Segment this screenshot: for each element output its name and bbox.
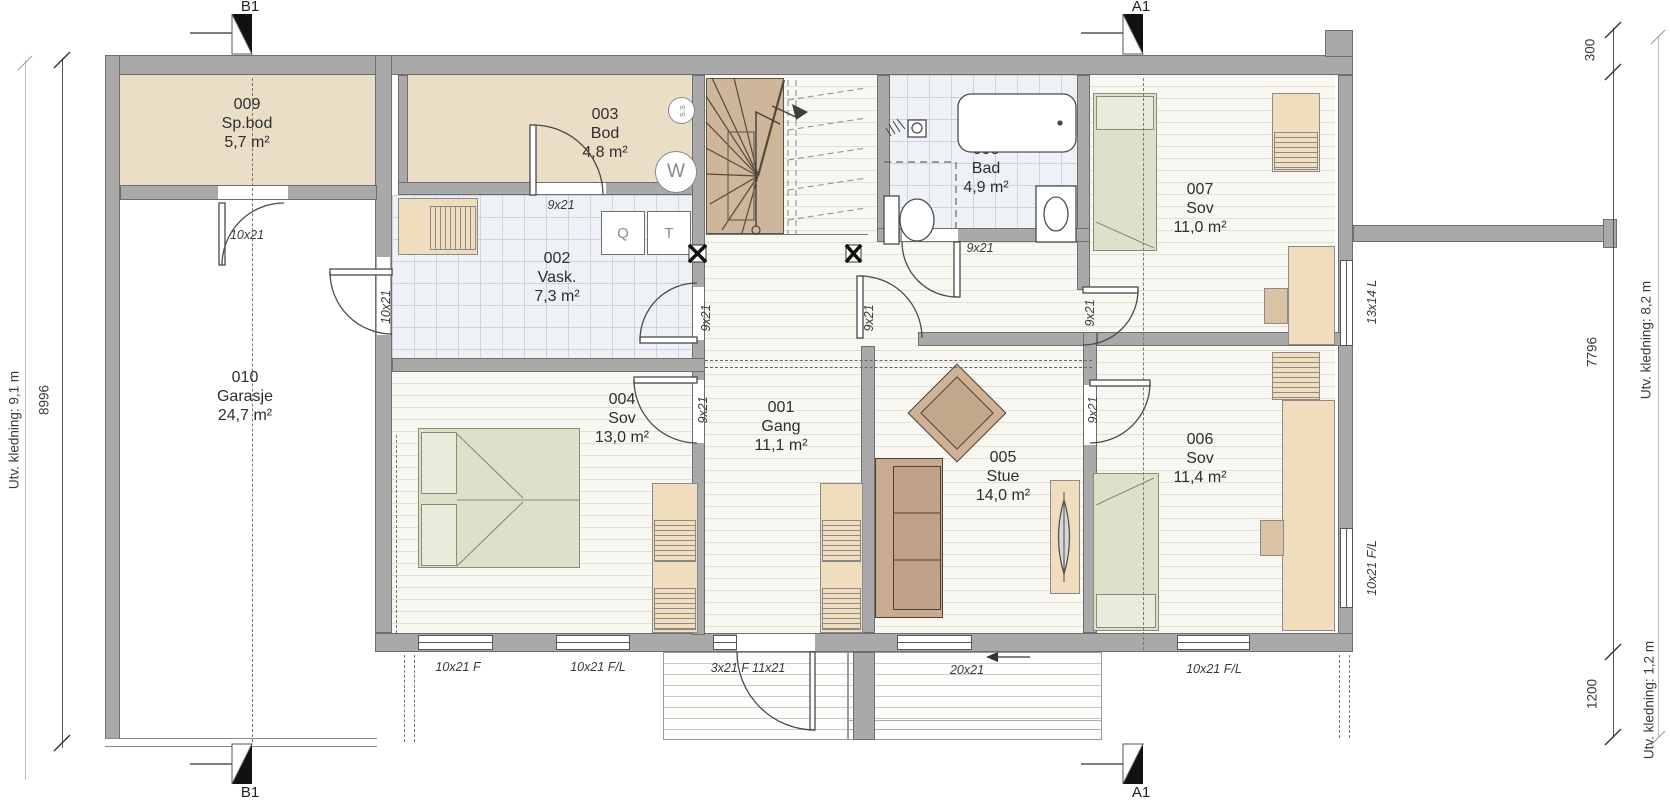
wall-stue-top <box>918 332 1086 346</box>
beam-line-1 <box>705 360 1092 361</box>
wardrobe-001-rail2 <box>822 588 861 630</box>
section-marker-b1-bottom <box>190 744 252 784</box>
floor-garage <box>120 200 375 740</box>
terrace-step-line <box>848 729 1102 730</box>
entry-sidelight <box>713 635 737 650</box>
overhang-dash-3 <box>1339 655 1340 738</box>
pillow-004b <box>421 504 457 566</box>
label-door-sov004: 9x21 <box>696 396 710 423</box>
sofa-005-cushions <box>893 466 941 610</box>
room-005-id: 005 <box>976 448 1030 467</box>
room-003-name: Bod <box>582 124 627 143</box>
room-002-name: Vask. <box>534 268 579 287</box>
room-label-002: 002 Vask. 7,3 m² <box>534 249 579 306</box>
room-label-006: 006 Sov 11,4 m² <box>1173 430 1226 487</box>
door-gap-bod <box>530 183 606 194</box>
room-001-area: 11,1 m² <box>754 436 807 455</box>
pillow-006 <box>1096 594 1156 628</box>
beam-line-2 <box>705 367 1092 368</box>
room-009-area: 5,7 m² <box>222 133 273 152</box>
stair-edge-line <box>706 234 868 235</box>
room-009-id: 009 <box>222 95 273 114</box>
room-006-name: Sov <box>1173 449 1226 468</box>
window-10x21-FL-2 <box>1177 635 1250 650</box>
room-label-003: 003 Bod 4,8 m² <box>582 105 627 162</box>
wardrobe-007-rail <box>1274 132 1318 170</box>
label-win-bottom-3: 10x21 F/L <box>1186 662 1242 676</box>
room-004-name: Sov <box>595 409 649 428</box>
dim-right-mm: 7796 <box>1585 337 1600 367</box>
overhang-dash-4 <box>1349 655 1350 738</box>
window-10x21-FL <box>556 635 630 650</box>
label-door-hall-vask: 9x21 <box>699 304 713 331</box>
floor-plan: s.s W Q T 8996 Utv. kledning: 9,1 m 300 … <box>0 0 1670 800</box>
desk-007 <box>1288 246 1335 345</box>
door-gap-spbod <box>218 186 288 199</box>
marker-a1-bottom-label: A1 <box>1132 784 1150 800</box>
room-007-area: 11,0 m² <box>1173 218 1226 237</box>
label-win-006-side: 10x21 F/L <box>1365 540 1379 596</box>
room-003-area: 4,8 m² <box>582 143 627 162</box>
wardrobe-006 <box>1272 352 1320 400</box>
label-door-bod: 9x21 <box>547 198 574 212</box>
room-label-009: 009 Sp.bod 5,7 m² <box>222 95 273 152</box>
room-002-id: 002 <box>534 249 579 268</box>
void-dash-garage-wall <box>396 435 397 633</box>
label-door-sov006: 9x21 <box>1086 396 1100 423</box>
wall-left <box>105 55 120 745</box>
label-win-007-side: 13x14 L <box>1365 280 1379 324</box>
bound-line-right <box>1658 36 1659 738</box>
dim-right-offset: 300 <box>1583 39 1598 62</box>
label-door-spbod: 10x21 <box>230 228 264 242</box>
sink-label: Q <box>617 225 629 242</box>
terrace-step-line <box>848 720 1102 721</box>
desk-006 <box>1282 400 1335 631</box>
tv-bench-005 <box>1050 480 1080 594</box>
room-001-id: 001 <box>754 398 807 417</box>
dim-right-cladding: Utv. kledning: 8,2 m <box>1639 281 1654 399</box>
central-vacuum-label: s.s <box>676 105 686 117</box>
wall-bath-left <box>877 75 890 230</box>
marker-b1-top-label: B1 <box>241 0 259 15</box>
chair-006 <box>1260 520 1284 556</box>
wall-vask-bottom <box>392 358 705 372</box>
room-004-area: 13,0 m² <box>595 428 649 447</box>
wall-bod-left <box>398 75 408 185</box>
label-door-bath: 9x21 <box>966 241 993 255</box>
window-10x21-FL-side <box>1340 528 1353 608</box>
garage-open-front <box>105 738 377 747</box>
room-008-area: 4,9 m² <box>963 178 1008 197</box>
chair-007 <box>1264 288 1288 324</box>
room-001-name: Gang <box>754 417 807 436</box>
washer-label: W <box>667 161 685 183</box>
wardrobe-004-rail <box>654 520 696 562</box>
room-006-id: 006 <box>1173 430 1226 449</box>
central-vacuum-icon: s.s <box>668 97 695 124</box>
room-005-area: 14,0 m² <box>976 486 1030 505</box>
marker-a1-top-label: A1 <box>1132 0 1150 15</box>
room-label-004: 004 Sov 13,0 m² <box>595 390 649 447</box>
fence-wall-right <box>1353 225 1613 242</box>
label-win-terrace: 20x21 <box>950 663 984 677</box>
dryer-label: T <box>664 225 673 242</box>
room-004-id: 004 <box>595 390 649 409</box>
room-label-005: 005 Stue 14,0 m² <box>976 448 1030 505</box>
room-003-id: 003 <box>582 105 627 124</box>
wardrobe-004-rail2 <box>654 588 696 630</box>
dim-line-left <box>62 58 63 748</box>
wall-right-stub-top <box>1325 30 1353 57</box>
room-010-area: 24,7 m² <box>217 406 273 425</box>
room-006-area: 11,4 m² <box>1173 468 1226 487</box>
room-007-id: 007 <box>1173 180 1226 199</box>
room-008-name: Bad <box>963 159 1008 178</box>
staircase <box>706 78 784 234</box>
bench-vask-rail <box>430 206 476 250</box>
window-20x21 <box>897 635 972 650</box>
wardrobe-001-rail <box>822 520 861 562</box>
room-label-001: 001 Gang 11,1 m² <box>754 398 807 455</box>
dim-right-cladding-bottom: Utv. kledning: 1,2 m <box>1642 641 1657 759</box>
section-line-a1 <box>1143 78 1144 650</box>
wall-bath-right <box>1077 75 1090 290</box>
wall-garage-right <box>375 55 392 633</box>
room-label-007: 007 Sov 11,0 m² <box>1173 180 1226 237</box>
door-gap-bath <box>902 229 958 241</box>
section-marker-a1-bottom <box>1081 744 1143 784</box>
overhang-dash-2 <box>414 655 415 742</box>
label-win-bottom-2: 10x21 F/L <box>570 660 626 674</box>
overhang-dash-1 <box>404 655 405 742</box>
floor-room-003 <box>404 75 692 183</box>
room-007-name: Sov <box>1173 199 1226 218</box>
room-009-name: Sp.bod <box>222 114 273 133</box>
dim-line-right <box>1613 28 1614 738</box>
label-door-hall-stue: 9x21 <box>862 304 876 331</box>
dim-left-cladding: Utv. kledning: 9,1 m <box>7 371 22 489</box>
room-010-name: Garasje <box>217 387 273 406</box>
dryer-unit-icon: T <box>647 211 691 255</box>
sink-unit-icon: Q <box>601 211 645 255</box>
label-door-sov007: 9x21 <box>1083 299 1097 326</box>
room-002-area: 7,3 m² <box>534 287 579 306</box>
washer-icon: W <box>655 151 697 193</box>
label-entry-door: 3x21 F 11x21 <box>711 661 786 675</box>
dim-right-bottom-mm: 1200 <box>1585 679 1600 709</box>
dim-left-mm: 8996 <box>37 385 52 415</box>
window-13x14-L <box>1340 260 1353 346</box>
pillow-007 <box>1096 96 1154 130</box>
room-010-id: 010 <box>217 368 273 387</box>
pillow-004a <box>421 432 457 494</box>
bound-line-left <box>25 60 26 780</box>
section-marker-b1-top <box>190 14 252 54</box>
fence-wall-cap <box>1603 219 1617 248</box>
window-10x21-F <box>418 635 493 650</box>
entry-door-gap <box>737 634 815 651</box>
room-008-id: 008 <box>963 140 1008 159</box>
deck-divider-pier <box>853 652 875 740</box>
room-label-010: 010 Garasje 24,7 m² <box>217 368 273 425</box>
wall-hall-stue <box>861 346 875 633</box>
room-005-name: Stue <box>976 467 1030 486</box>
wall-top <box>105 55 1353 75</box>
section-marker-a1-top <box>1081 14 1143 54</box>
label-door-garage-vask: 10x21 <box>379 290 393 324</box>
marker-b1-bottom-label: B1 <box>241 784 259 800</box>
room-label-008: 008 Bad 4,9 m² <box>963 140 1008 197</box>
label-win-bottom-1: 10x21 F <box>435 660 480 674</box>
